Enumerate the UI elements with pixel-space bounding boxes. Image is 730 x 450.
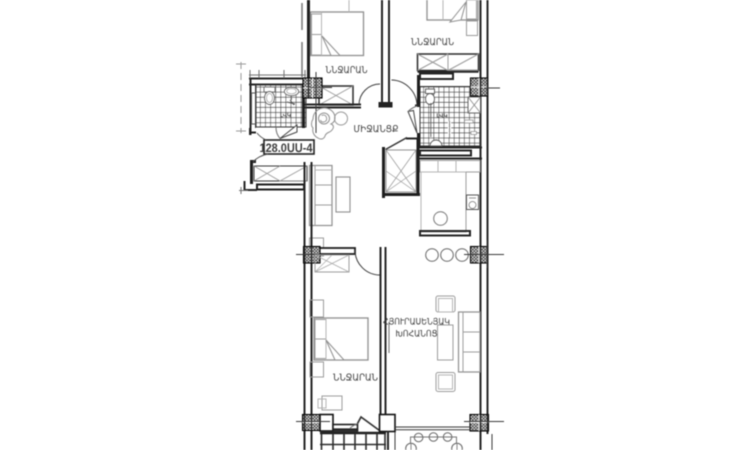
svg-text:ԽՈՀԱՆՈՑ: ԽՈՀԱՆՈՑ — [396, 329, 438, 339]
svg-text:ԼՎԿ: ԼՎԿ — [280, 112, 291, 119]
svg-text:128.0ՍՍ-4: 128.0ՍՍ-4 — [260, 142, 314, 155]
svg-text:ՆՆՋԱՐԱՆ: ՆՆՋԱՐԱՆ — [333, 373, 378, 384]
svg-text:ԼՎԿ: ԼՎԿ — [437, 113, 448, 120]
svg-text:ՆՆՋԱՐԱՆ: ՆՆՋԱՐԱՆ — [326, 65, 368, 76]
svg-text:ՄԻՋԱՆՑՔ: ՄԻՋԱՆՑՔ — [354, 124, 399, 135]
svg-text:ՆՆՋԱՐԱՆ: ՆՆՋԱՐԱՆ — [411, 37, 454, 48]
